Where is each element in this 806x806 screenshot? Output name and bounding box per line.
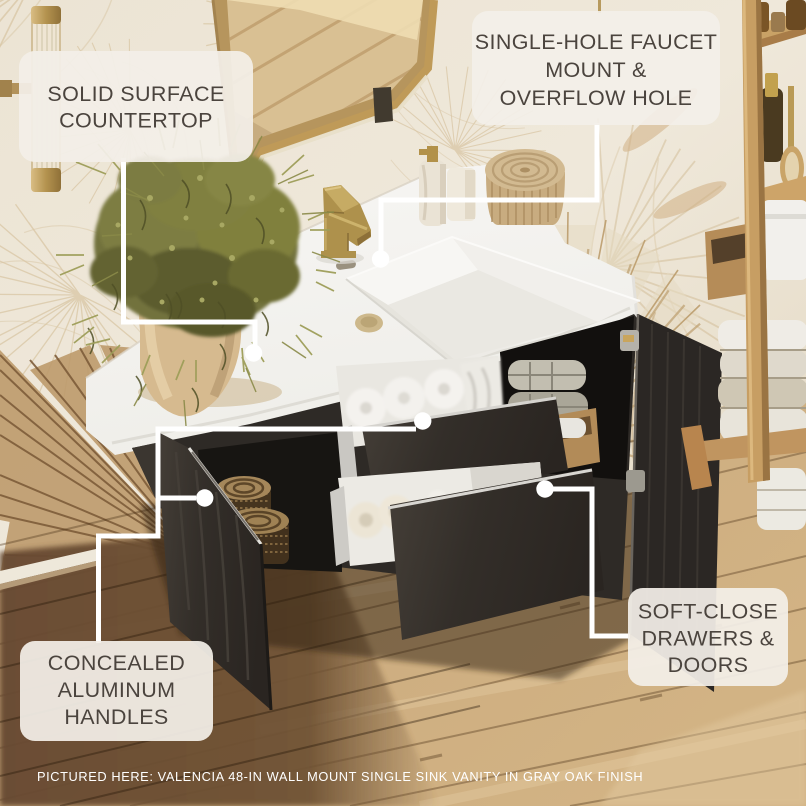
svg-text:COUNTERTOP: COUNTERTOP [59,109,213,133]
svg-text:CONCEALED: CONCEALED [48,651,185,675]
svg-text:HANDLES: HANDLES [64,705,168,729]
svg-text:MOUNT &: MOUNT & [545,58,647,82]
svg-text:SOLID SURFACE: SOLID SURFACE [47,82,224,106]
svg-text:DRAWERS &: DRAWERS & [641,627,774,651]
svg-text:SINGLE-HOLE FAUCET: SINGLE-HOLE FAUCET [475,30,718,54]
svg-text:OVERFLOW HOLE: OVERFLOW HOLE [500,86,693,110]
svg-text:ALUMINUM: ALUMINUM [58,678,176,702]
svg-text:PICTURED HERE: VALENCIA 48-IN: PICTURED HERE: VALENCIA 48-IN WALL MOUNT… [37,769,643,784]
svg-text:SOFT-CLOSE: SOFT-CLOSE [638,600,778,624]
svg-text:DOORS: DOORS [668,653,749,677]
